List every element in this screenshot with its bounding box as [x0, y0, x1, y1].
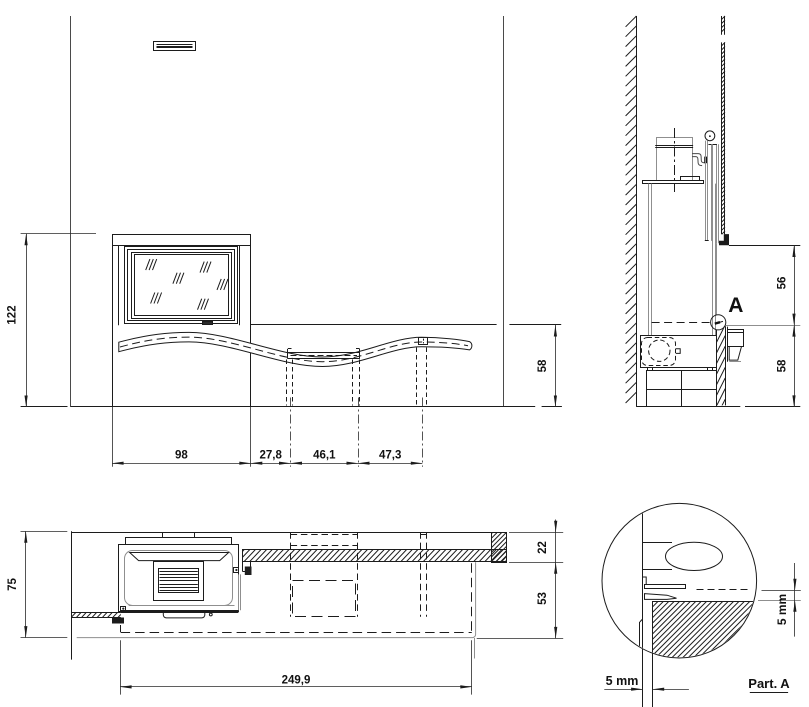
svg-text:249,9: 249,9: [282, 674, 311, 686]
svg-text:58: 58: [537, 359, 549, 372]
svg-text:46,1: 46,1: [313, 450, 336, 462]
svg-text:56: 56: [776, 277, 788, 290]
svg-text:98: 98: [175, 450, 188, 462]
svg-text:27,8: 27,8: [260, 450, 283, 462]
svg-text:5 mm: 5 mm: [775, 594, 789, 625]
svg-text:75: 75: [7, 578, 19, 591]
svg-text:122: 122: [7, 305, 19, 324]
svg-text:22: 22: [537, 541, 549, 554]
svg-text:58: 58: [776, 359, 788, 372]
svg-text:47,3: 47,3: [379, 450, 401, 462]
svg-text:5 mm: 5 mm: [606, 674, 639, 688]
svg-text:A: A: [728, 294, 743, 317]
svg-text:Part. A: Part. A: [748, 676, 790, 691]
svg-text:53: 53: [537, 592, 549, 605]
